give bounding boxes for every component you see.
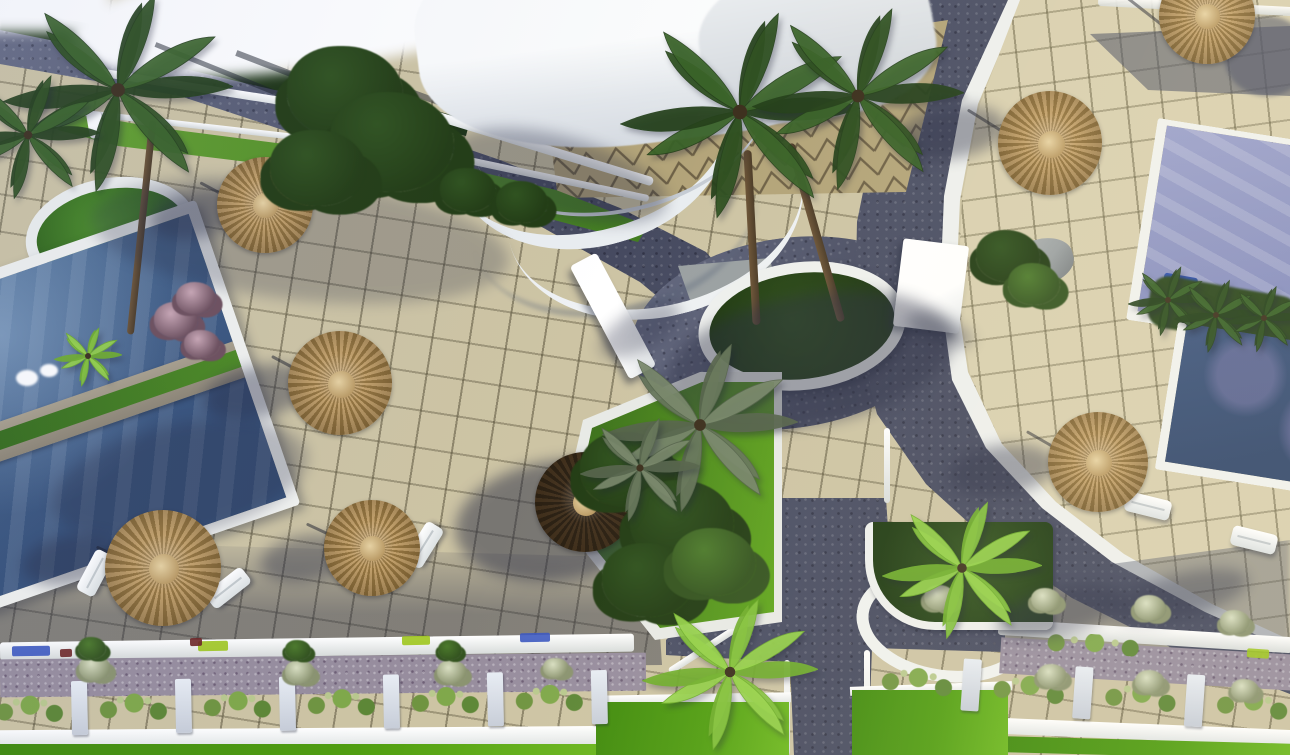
bush-dark — [496, 181, 548, 223]
bush-mid — [78, 637, 106, 659]
bush-pink — [184, 330, 220, 359]
bush-pink — [176, 282, 216, 314]
bush-pale — [1037, 664, 1067, 688]
palm-canopy-bright — [642, 584, 818, 755]
bush-pale — [79, 655, 111, 681]
palm-canopy-gray — [580, 408, 700, 528]
bush-pale — [1135, 670, 1165, 694]
bush-mid — [285, 640, 311, 661]
bush-pale — [543, 658, 569, 679]
palm-canopy-dark — [0, 63, 100, 207]
bush-dark — [440, 168, 496, 213]
palm-canopy-dark — [1226, 280, 1290, 356]
resort-aerial-render — [0, 0, 1290, 755]
bush-pale — [1231, 679, 1259, 701]
layer-vegetation — [0, 0, 1290, 755]
bush-pale — [1134, 595, 1166, 621]
bush-pale — [437, 660, 467, 684]
palm-canopy-dark — [752, 0, 964, 202]
palm-canopy-bright — [882, 488, 1042, 648]
palm-canopy-bright — [54, 322, 122, 390]
bush-mid — [438, 640, 462, 659]
bush-mid — [1008, 263, 1060, 305]
bush-pale — [285, 660, 315, 684]
bush-pale — [1220, 610, 1250, 634]
bush-dark — [270, 130, 366, 207]
